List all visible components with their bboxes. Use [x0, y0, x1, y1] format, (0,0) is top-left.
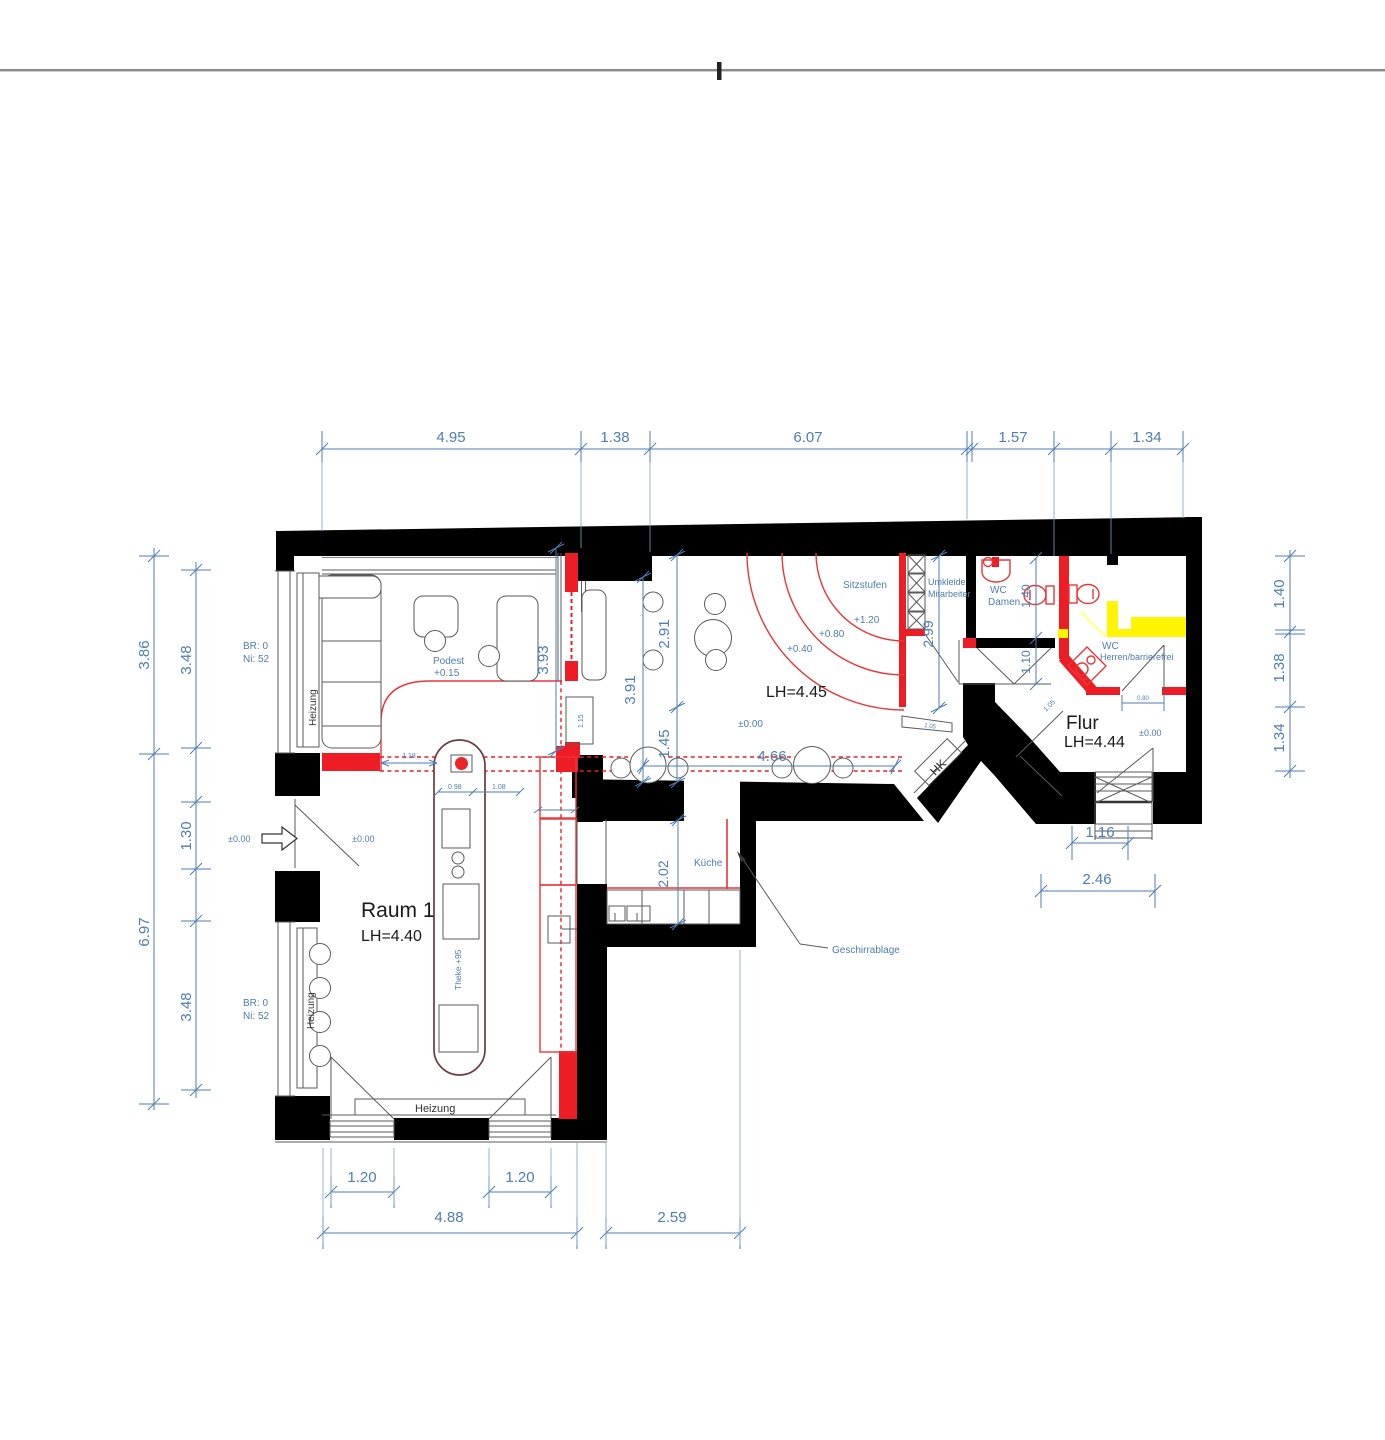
svg-text:Heizung: Heizung — [415, 1103, 455, 1115]
svg-text:6.97: 6.97 — [136, 917, 153, 946]
svg-text:BR: 0: BR: 0 — [243, 998, 268, 1009]
svg-text:±0.00: ±0.00 — [352, 834, 374, 844]
svg-text:4.88: 4.88 — [434, 1209, 463, 1226]
svg-text:2.02: 2.02 — [655, 860, 671, 887]
svg-text:3.48: 3.48 — [178, 992, 195, 1021]
svg-text:4.95: 4.95 — [436, 429, 465, 446]
svg-text:Umkleide: Umkleide — [928, 577, 966, 587]
svg-text:0.98: 0.98 — [448, 784, 462, 791]
svg-text:1.18: 1.18 — [402, 753, 416, 760]
svg-text:3.48: 3.48 — [178, 645, 195, 674]
svg-text:Heizung: Heizung — [306, 992, 317, 1029]
svg-text:1.34: 1.34 — [1132, 429, 1161, 446]
svg-text:+0.40: +0.40 — [787, 644, 813, 655]
svg-text:Ni: 52: Ni: 52 — [243, 654, 270, 665]
svg-text:Heizung: Heizung — [308, 689, 319, 726]
svg-text:±0.00: ±0.00 — [738, 719, 763, 730]
svg-text:±0.00: ±0.00 — [1139, 728, 1161, 738]
svg-text:Flur: Flur — [1066, 713, 1099, 734]
svg-text:Theke +95: Theke +95 — [453, 949, 463, 990]
svg-text:2.99: 2.99 — [920, 620, 936, 647]
svg-text:4.66: 4.66 — [757, 748, 786, 765]
svg-text:2.46: 2.46 — [1082, 871, 1111, 888]
svg-text:+0.15: +0.15 — [434, 668, 460, 679]
svg-text:1.40: 1.40 — [1271, 579, 1288, 608]
svg-text:Damen: Damen — [988, 597, 1020, 608]
svg-text:6.07: 6.07 — [793, 429, 822, 446]
svg-text:+0.80: +0.80 — [819, 629, 845, 640]
svg-text:Küche: Küche — [694, 858, 723, 869]
svg-text:1.34: 1.34 — [1271, 723, 1288, 752]
svg-text:1.16: 1.16 — [1085, 824, 1114, 841]
svg-text:Podest: Podest — [433, 656, 464, 667]
svg-text:2.91: 2.91 — [656, 619, 673, 648]
svg-text:Mitarbeiter: Mitarbeiter — [928, 589, 971, 599]
svg-text:Ni: 52: Ni: 52 — [243, 1011, 270, 1022]
svg-text:1.30: 1.30 — [178, 821, 195, 850]
svg-text:Herren/barrierefrei: Herren/barrierefrei — [1100, 652, 1174, 662]
svg-text:1.38: 1.38 — [1271, 653, 1288, 682]
svg-text:Geschirrablage: Geschirrablage — [832, 945, 900, 956]
svg-text:+1.20: +1.20 — [854, 615, 880, 626]
svg-text:1.20: 1.20 — [505, 1169, 534, 1186]
svg-text:LH=4.45: LH=4.45 — [766, 684, 827, 701]
svg-text:3.93: 3.93 — [535, 645, 552, 674]
svg-text:Sitzstufen: Sitzstufen — [843, 580, 887, 591]
svg-text:3.86: 3.86 — [136, 640, 153, 669]
svg-text:LH=4.40: LH=4.40 — [361, 928, 422, 945]
svg-text:2.59: 2.59 — [657, 1209, 686, 1226]
svg-text:BR: 0: BR: 0 — [243, 641, 268, 652]
svg-text:0.80: 0.80 — [1137, 696, 1149, 702]
svg-text:±0.00: ±0.00 — [228, 834, 250, 844]
svg-text:1.57: 1.57 — [998, 429, 1027, 446]
svg-text:1.10: 1.10 — [1019, 650, 1033, 674]
svg-text:WC: WC — [1102, 641, 1119, 652]
svg-text:1.45: 1.45 — [656, 729, 673, 758]
svg-text:3.91: 3.91 — [622, 675, 639, 704]
svg-text:LH=4.44: LH=4.44 — [1064, 734, 1125, 751]
svg-text:1.40: 1.40 — [1019, 584, 1033, 608]
svg-text:1.15: 1.15 — [578, 714, 585, 728]
svg-text:WC: WC — [990, 585, 1007, 596]
svg-text:Raum 1: Raum 1 — [361, 899, 435, 922]
svg-text:1.08: 1.08 — [492, 784, 506, 791]
svg-text:1.20: 1.20 — [347, 1169, 376, 1186]
svg-text:1.38: 1.38 — [600, 429, 629, 446]
